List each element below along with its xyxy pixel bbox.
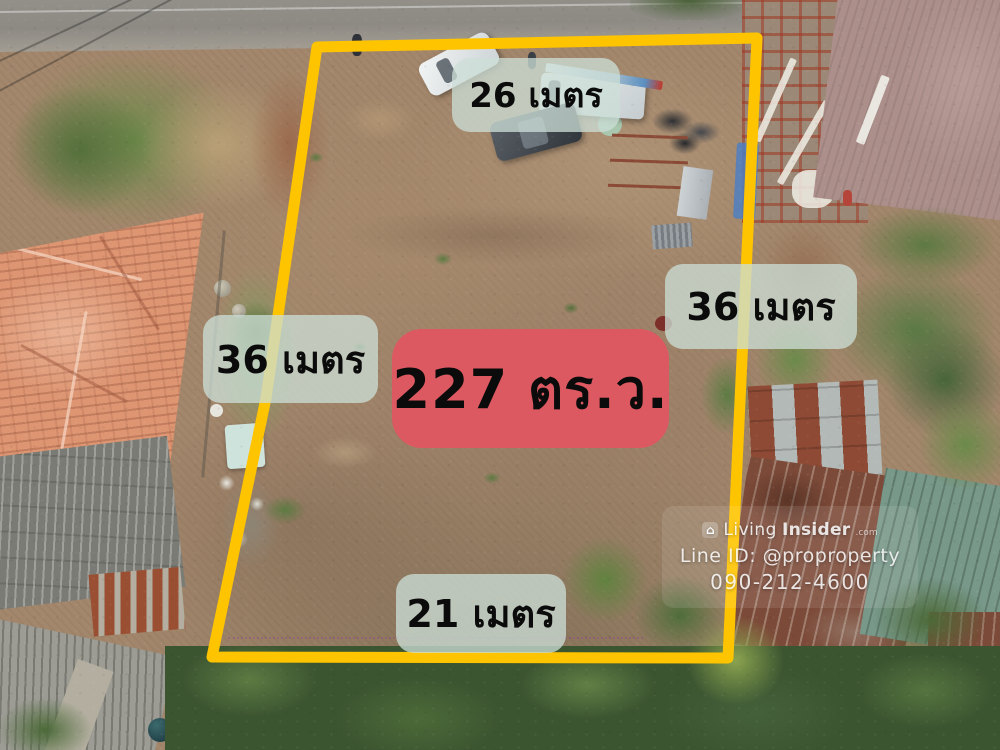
weed-patch [255,490,315,530]
watermark-brand-bold: Insider [782,520,851,540]
ground-shadow-band [280,195,710,275]
blue-tarp [733,142,759,219]
dimension-label-right: 36 เมตร [665,264,857,349]
watermark-brand-row: ⌂ Living Insider .com [702,520,877,540]
weed [560,300,582,316]
watermark-brand-light: Living [723,520,777,540]
treetops-top-edge [630,0,750,20]
weed [430,250,456,268]
watermark-phone: 090-212-4600 [710,570,870,594]
dimension-label-top-text: 26 เมตร [469,68,603,122]
aerial-land-photo: 26 เมตร 36 เมตร 36 เมตร 21 เมตร 227 ตร.ว… [0,0,1000,750]
light-dirt-patch [300,430,390,475]
watermark-brand-suffix: .com [856,528,878,540]
right-house-roof [813,0,1000,221]
weed [305,150,327,165]
foliage-right [900,380,1000,510]
light-dirt-patch [330,90,430,150]
dimension-label-bottom-text: 21 เมตร [406,583,555,644]
dimension-label-left: 36 เมตร [203,315,378,403]
gray-corrugated-roof [0,436,186,610]
livinginsider-logo-icon: ⌂ [702,522,718,538]
dimension-label-top: 26 เมตร [452,58,620,132]
rebar-rack [608,184,682,190]
watermark: ⌂ Living Insider .com Line ID: @proprope… [662,506,918,608]
dimension-label-bottom: 21 เมตร [396,574,566,653]
dimension-label-left-text: 36 เมตร [216,329,365,390]
area-badge-text: 227 ตร.ว. [393,346,669,432]
corrugated-scrap [651,223,693,250]
bottom-left-bushes [0,685,110,750]
rust-striped-panel [88,567,185,637]
rebar-rack [610,159,688,165]
watermark-line-id: Line ID: @proproperty [680,545,900,567]
person-in-red [843,190,852,206]
trees-bottom-band [165,646,1000,750]
roof-ridge-strip [856,75,890,145]
dimension-label-right-text: 36 เมตร [686,276,835,337]
weed [480,470,504,486]
person-on-road [352,34,362,56]
debris-pile [648,102,730,157]
area-badge: 227 ตร.ว. [392,329,669,448]
